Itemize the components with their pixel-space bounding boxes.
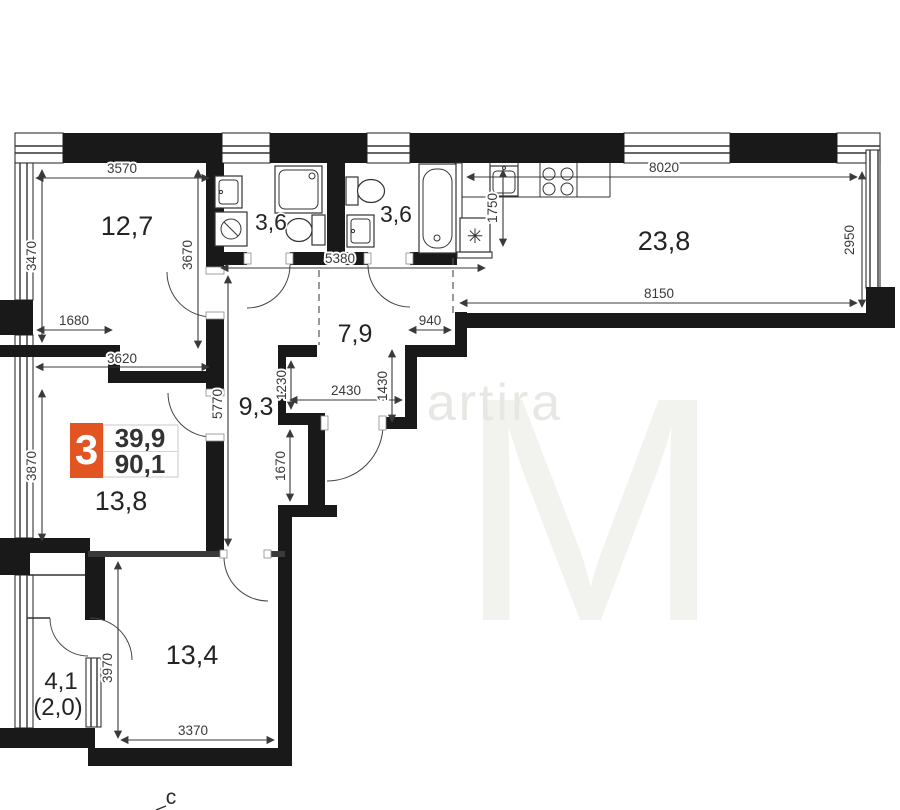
- shaft-symbol: ✳: [467, 226, 484, 248]
- sink-icon: [215, 176, 242, 208]
- room-label-12-7: 12,7: [101, 211, 154, 241]
- room-label-corridor: 9,3: [239, 393, 274, 421]
- door-arc-room-13-4: [224, 557, 268, 601]
- dim-1750: 1750: [485, 193, 500, 223]
- washing-machine-icon: [215, 212, 247, 246]
- window-left-1: [15, 163, 33, 300]
- window-top-4: [624, 133, 730, 163]
- room-label-hall: 7,9: [338, 320, 373, 348]
- window-top-3: [367, 133, 410, 163]
- dim-940: 940: [419, 313, 442, 328]
- dim-3670: 3670: [180, 240, 195, 270]
- badge-rooms-count: 3: [75, 426, 98, 473]
- dim-1230: 1230: [274, 370, 289, 400]
- dim-8020: 8020: [649, 160, 679, 175]
- room-label-balcony: 4,1: [44, 668, 77, 695]
- stove-icon: [543, 168, 573, 195]
- window-right: [866, 150, 880, 288]
- dim-1670: 1670: [273, 451, 288, 481]
- dim-8150: 8150: [644, 286, 674, 301]
- door-arc-entrance: [327, 425, 383, 481]
- room-label-bath-1: 3,6: [255, 209, 287, 235]
- shaft-bottom-partition: [457, 252, 492, 258]
- kitchen-sink-icon: [490, 166, 518, 196]
- floor-plan-svg: M artira: [0, 0, 900, 810]
- area-badge: 3 39,9 90,1: [70, 423, 178, 479]
- room-label-13-4: 13,4: [166, 640, 219, 670]
- shower-icon: [275, 166, 322, 213]
- room-label-kitchen: 23,8: [638, 226, 691, 256]
- badge-total-area: 90,1: [115, 449, 166, 479]
- window-top-1: [15, 133, 63, 163]
- room-label-bath-2: 3,6: [380, 201, 412, 227]
- bathtub-icon: [419, 164, 456, 253]
- dim-2950: 2950: [842, 225, 857, 255]
- dim-3570: 3570: [107, 161, 137, 176]
- sink-icon: [347, 215, 374, 247]
- dim-3870: 3870: [24, 451, 39, 481]
- floor-plan: M artira: [0, 0, 900, 810]
- dim-1430: 1430: [375, 371, 390, 401]
- toilet-icon: [286, 215, 325, 245]
- kitchen-counter: [462, 163, 610, 197]
- toilet-icon: [346, 177, 385, 205]
- door-arc-bath-1: [247, 265, 290, 308]
- room-label-balcony-secondary: (2,0): [33, 694, 82, 721]
- window-left-2: [15, 335, 33, 538]
- door-arc-balcony-out: [50, 618, 88, 656]
- door-arc-room-12-7: [167, 272, 212, 317]
- watermark: M artira: [427, 330, 724, 688]
- dim-3620: 3620: [107, 351, 137, 366]
- dim-2430: 2430: [331, 383, 361, 398]
- room-label-13-8: 13,8: [95, 486, 148, 516]
- north-indicator: с: [156, 786, 176, 810]
- dim-5770: 5770: [210, 389, 225, 419]
- north-arrow-line: [156, 806, 166, 810]
- dim-3370: 3370: [178, 723, 208, 738]
- watermark-text: artira: [427, 374, 563, 432]
- dim-5380: 5380: [325, 251, 355, 266]
- dim-1680: 1680: [59, 313, 89, 328]
- window-top-2: [222, 133, 270, 163]
- door-arc-bath-2: [368, 265, 410, 307]
- dim-3970: 3970: [100, 653, 115, 683]
- window-balcony-door-block: [86, 658, 101, 727]
- north-label: с: [166, 786, 177, 809]
- dim-3470: 3470: [24, 241, 39, 271]
